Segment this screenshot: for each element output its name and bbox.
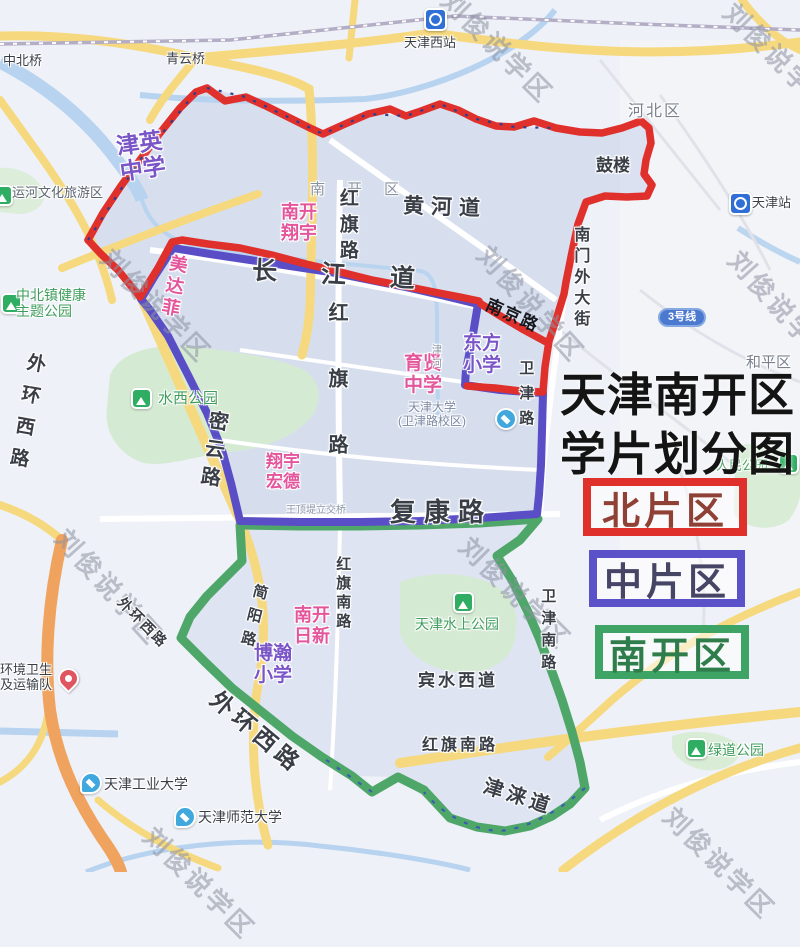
park-label: 天津水上公园 (415, 616, 499, 632)
legend-north-district: 北片区 (583, 478, 747, 536)
university-icon (80, 772, 102, 794)
road-label: 红旗路 (336, 188, 358, 266)
road-label: 宾水西道 (418, 671, 498, 691)
legend-middle-district: 中片区 (589, 550, 745, 607)
school-label: 翔宇 宏德 (266, 452, 300, 491)
scenic-area-label: 运河文化旅游区 (12, 186, 103, 201)
bridge-label: 中北桥 (3, 54, 42, 69)
station-label: 天津站 (752, 196, 791, 211)
district-label: 河北区 (628, 103, 682, 121)
metro-line3-badge: 3号线 (658, 308, 706, 327)
park-icon (453, 592, 474, 613)
park-icon (686, 738, 707, 759)
park-label: 绿道公园 (708, 742, 764, 758)
road-label: 红旗南路 (422, 737, 498, 755)
bridge-label: 青云桥 (166, 52, 205, 67)
metro-icon (729, 192, 752, 215)
landmark-label: 鼓楼 (596, 156, 630, 176)
facility-label: 环境卫生 及运输队 (0, 663, 52, 693)
school-district-map[interactable]: 刘俊说学区 刘俊说学区 刘俊说学区 刘俊说学区 刘俊说学区 刘俊说学区 刘俊说学… (0, 0, 800, 872)
metro-icon (424, 8, 447, 31)
university-icon (495, 408, 517, 430)
road-label: 红旗路 (324, 302, 347, 500)
road-label: 卫津路 (517, 360, 534, 435)
university-label: 天津师范大学 (198, 809, 282, 825)
legend-south-label: 南开区 (609, 625, 735, 680)
school-label: 南开 日新 (294, 605, 330, 646)
university-label: 天津工业大学 (104, 776, 188, 792)
university-icon (174, 806, 196, 828)
district-label: 南开区 (310, 181, 421, 198)
map-title: 天津南开区 学片划分图 (560, 366, 800, 484)
road-label: 复康路 (390, 498, 492, 528)
legend-south-district: 南开区 (595, 625, 749, 679)
school-label: 津英 中学 (115, 127, 168, 186)
school-label: 东方 小学 (463, 333, 501, 377)
school-label: 南开 翔宇 (281, 202, 317, 243)
legend-middle-label: 中片区 (604, 551, 730, 606)
park-icon (131, 388, 152, 409)
road-label: 卫津南路 (539, 588, 556, 676)
park-label: 中北镇健康 主题公园 (16, 287, 86, 319)
park-label: 水西公园 (158, 390, 218, 407)
university-label: 天津大学 (卫津路校区) (398, 401, 466, 429)
river-label: 津河 (429, 344, 441, 372)
legend-north-label: 北片区 (602, 480, 728, 535)
station-label: 天津西站 (404, 36, 456, 51)
road-label: 红旗南路 (334, 556, 351, 632)
interchange-label: 王顶堤立交桥 (286, 505, 346, 517)
road-label: 南门外大街 (570, 226, 588, 331)
school-label: 博瀚 小学 (254, 643, 292, 687)
road-label: 黄河道 (403, 195, 488, 222)
